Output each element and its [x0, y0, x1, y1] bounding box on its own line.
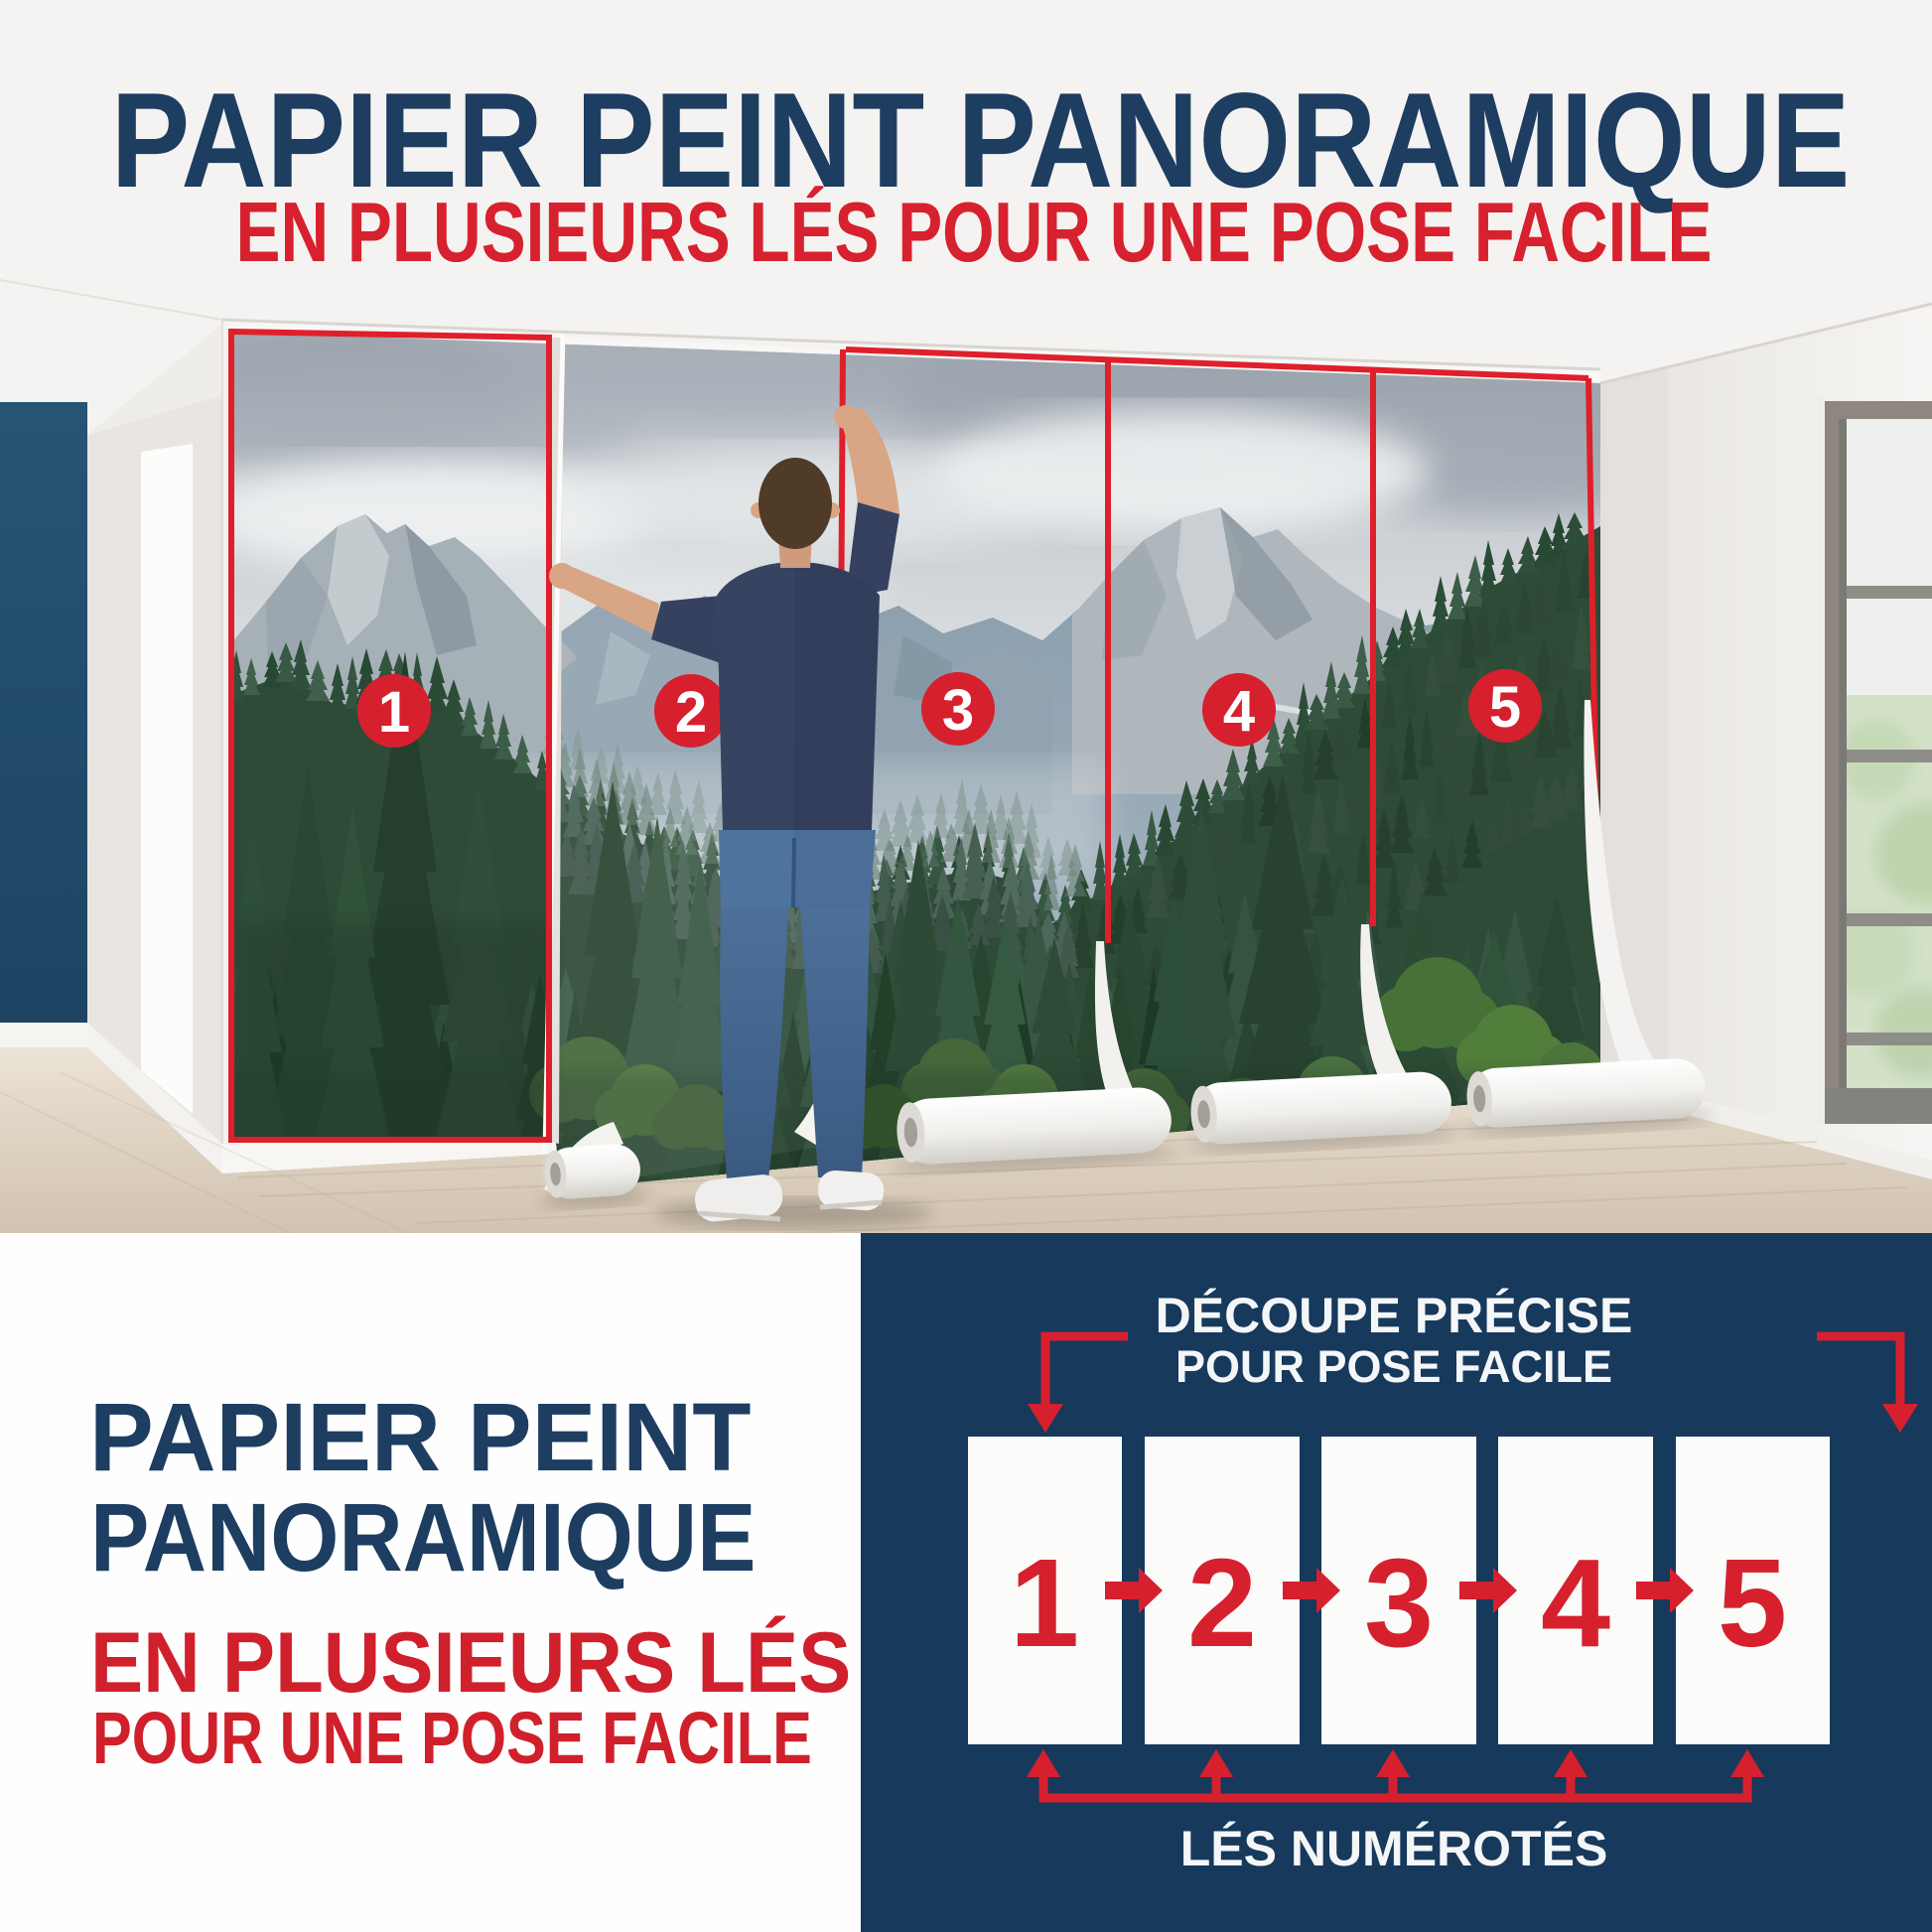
svg-text:LÉS NUMÉROTÉS: LÉS NUMÉROTÉS [1180, 1821, 1608, 1876]
svg-text:DÉCOUPE PRÉCISE: DÉCOUPE PRÉCISE [1156, 1288, 1633, 1343]
svg-text:2: 2 [1187, 1533, 1257, 1673]
svg-text:3: 3 [942, 678, 974, 743]
svg-text:4: 4 [1223, 679, 1255, 744]
svg-text:2: 2 [675, 680, 707, 745]
svg-text:3: 3 [1364, 1533, 1434, 1673]
svg-text:1: 1 [1010, 1533, 1079, 1673]
svg-text:1: 1 [378, 680, 410, 745]
svg-text:POUR POSE FACILE: POUR POSE FACILE [1175, 1341, 1612, 1392]
svg-text:4: 4 [1541, 1533, 1610, 1673]
svg-text:5: 5 [1718, 1533, 1787, 1673]
svg-text:5: 5 [1489, 675, 1521, 740]
